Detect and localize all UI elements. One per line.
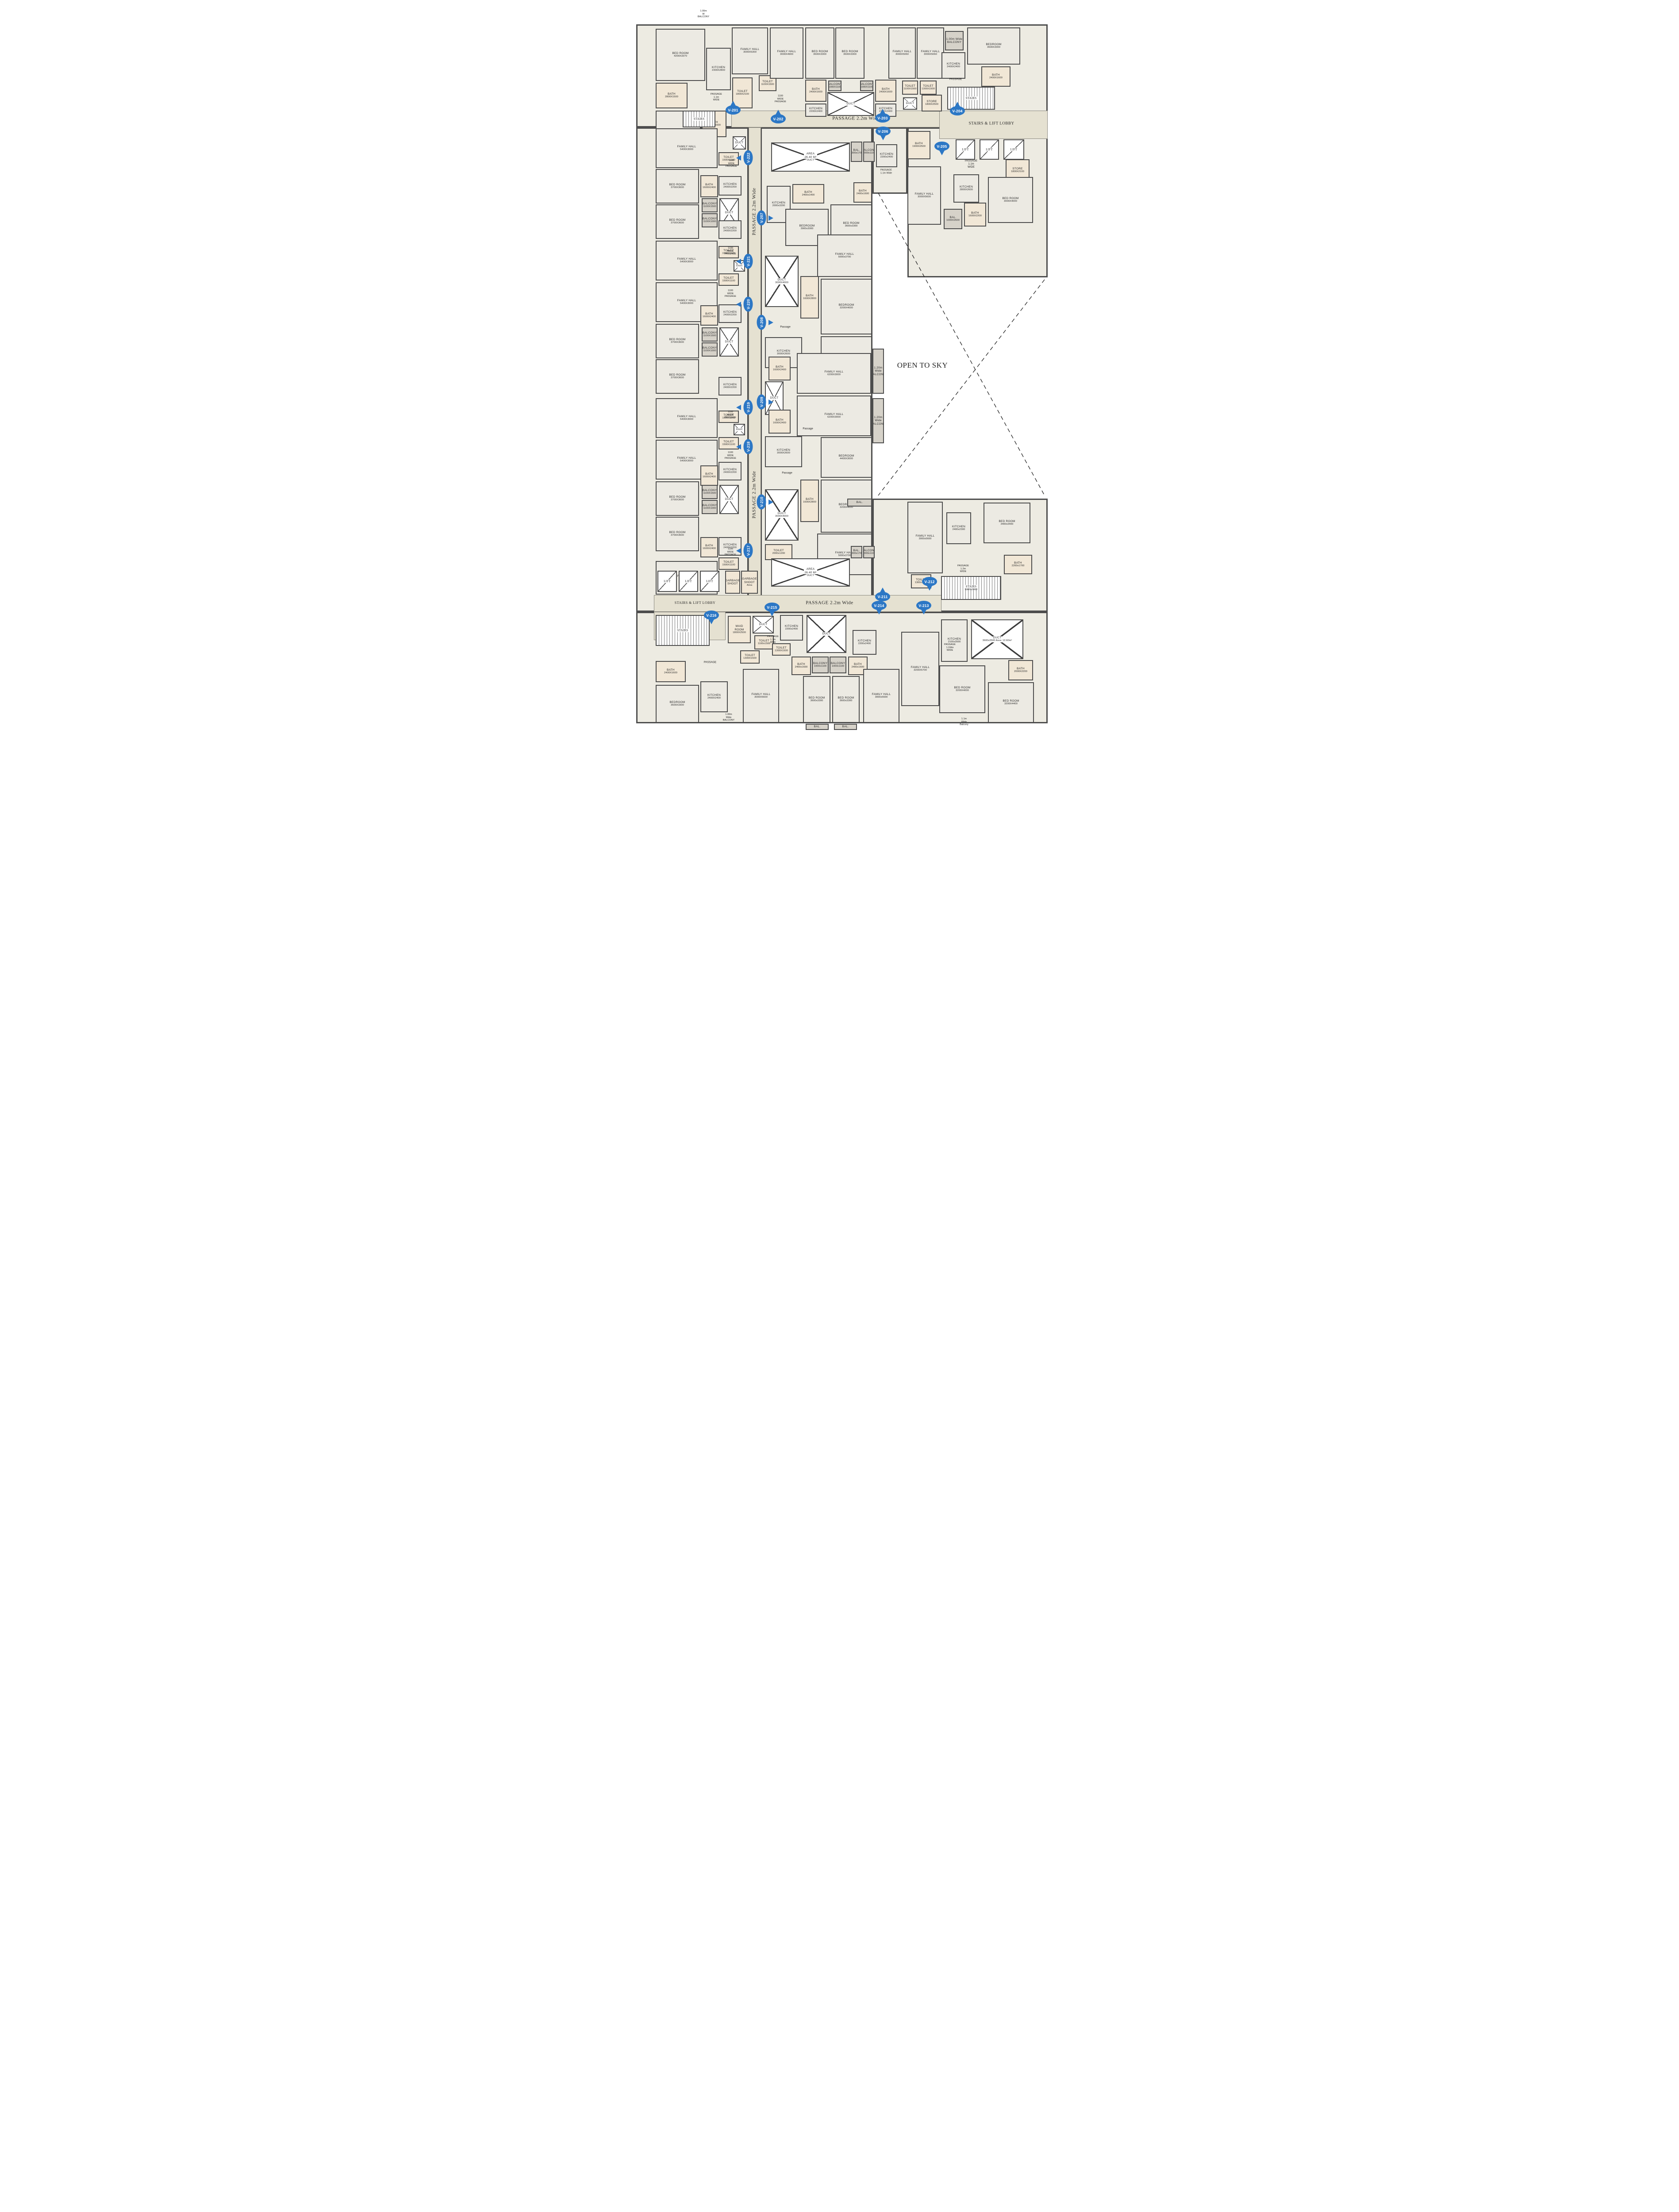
room-dimensions: 6200X3000 — [827, 373, 841, 376]
room-bed-room-137: BED ROOM3600x3300 — [832, 676, 860, 723]
room-dimensions: 1300X1500 — [922, 88, 935, 91]
room-dimensions: 2000x1200 — [772, 552, 785, 555]
marker-id-label: V-221 — [744, 254, 753, 269]
room-store-24: STORE1800X2500 — [922, 95, 942, 111]
room-family-hall-9: FAMILY HALL3000X4900 — [770, 27, 803, 79]
plan-label-passage-21: Passage — [782, 472, 792, 475]
room-label: BAL. — [814, 725, 821, 728]
room-family-hall-142: FAMILY HALL3000x5600 — [907, 502, 943, 573]
room-label: FAMILY HALL — [677, 299, 696, 302]
room-kitchen-49: KITCHEN2200x2400 — [876, 144, 897, 167]
room-bed-room-84: BED ROOM3700X3600 — [656, 359, 699, 394]
duct-duct-122: DUCT — [753, 616, 774, 634]
room-bath-12: BATH2400X1600 — [805, 80, 826, 102]
duct-duct-52: DUCT3000X4000 — [765, 256, 799, 307]
room-label: BATH — [806, 294, 814, 297]
room-dimensions: 1600X2400 — [703, 186, 716, 189]
view-marker-v-208[interactable]: V-208 — [754, 318, 769, 327]
room-label: FAMILY HALL — [893, 50, 912, 53]
room-bath-145: BATH2200x1700 — [1004, 555, 1032, 574]
room-label: KITCHEN — [952, 525, 965, 528]
room-label: KITCHEN — [723, 383, 737, 386]
balcony-balcony-74: BALCONY1000x1100 — [863, 546, 875, 558]
room-label: FAMILY HALL — [677, 457, 696, 460]
room-label: TOILET — [776, 646, 787, 649]
room-family-hall-51: FAMILY HALL5000x3700 — [817, 234, 872, 277]
room-dimensions: 3000X5600 — [918, 196, 931, 199]
room-kitchen-110: KITCHEN2400X2200 — [718, 462, 742, 480]
plan-label-1100-9: 1100 WIDE PASSAGE — [775, 95, 786, 104]
room-dimensions: 2400X1600 — [989, 77, 1003, 80]
balcony-balcony-90: BALCONY1100X1500 — [702, 327, 718, 342]
stairs-stairs-30: STAIRS — [683, 111, 715, 127]
duct-duct-126: DUCT — [807, 615, 846, 653]
view-marker-v-212[interactable]: V-212 — [922, 577, 937, 586]
balcony-bal-73: BAL.1300x1700 — [851, 546, 862, 558]
marker-pointer-icon — [736, 444, 741, 449]
room-dimensions: 3700X3600 — [671, 499, 684, 502]
view-marker-v-207[interactable]: V-207 — [754, 213, 769, 223]
marker-pointer-icon — [736, 405, 741, 410]
room-label: KITCHEN — [772, 201, 785, 204]
room-label: TOILET — [723, 440, 734, 443]
marker-pointer-icon — [876, 610, 882, 614]
room-bed-room-11: BED ROOM3600X3300 — [835, 27, 864, 79]
room-label: KITCHEN — [948, 637, 961, 641]
room-label: FAMILY HALL — [825, 413, 844, 416]
room-label: BED ROOM — [812, 50, 828, 53]
plan-label-passage-10: PASSAGE — [949, 78, 962, 81]
room-bath-13: BATH2400X1600 — [875, 80, 896, 102]
stairs-stairs-147: STAIRS5900x2400 — [941, 576, 1001, 600]
stairs-stairs-120: STAIRS — [656, 615, 710, 646]
room-dimensions: 3600x3500 Area: 12.60m² — [982, 639, 1013, 642]
room-dimensions: 2400X2400 — [947, 65, 960, 69]
balcony-balcony-88: BALCONY1100X1000 — [702, 213, 718, 227]
plan-label-open-to-sky-6: OPEN TO SKY — [897, 361, 948, 370]
room-dimensions: 3000X4000 — [1004, 200, 1017, 203]
marker-id-label: V-222 — [744, 150, 753, 165]
room-bed-room-144: BED ROOM3400x3400 — [984, 503, 1030, 543]
room-label: TOILET — [773, 549, 784, 552]
room-bedroom-65: BEDROOM4400X3000 — [821, 437, 872, 478]
room-bed-room-136: BED ROOM3600x3300 — [803, 676, 830, 723]
room-label: BATH — [806, 498, 814, 501]
room-dimensions: 1100X1500 — [703, 492, 716, 495]
room-kitchen-139: KITCHEN2200x2400 — [853, 630, 876, 655]
plan-label-1100-18: 1100 WIDE PASSAGE — [725, 548, 736, 557]
room-bath-45: BATH2400x1400 — [792, 184, 824, 204]
room-label: BAL. — [857, 501, 863, 504]
room-label: BATH — [705, 472, 713, 476]
room-label: BED ROOM — [809, 696, 825, 699]
room-dimensions: 3000X4000 — [775, 515, 789, 518]
room-label: BEDROOM — [799, 224, 815, 227]
room-dimensions: 3400x3400 — [1001, 523, 1014, 526]
room-dimensions: 2200X2400 — [809, 110, 822, 113]
room-dimensions: 3700X3600 — [671, 186, 684, 189]
room-kitchen-148: KITCHEN2100x3500 — [941, 619, 968, 662]
room-dimensions: DUCT — [807, 574, 815, 577]
room-label: Duct — [736, 428, 743, 431]
duct-duct-16: DUCT — [827, 92, 874, 116]
marker-pointer-icon — [768, 215, 773, 221]
room-dimensions: 2400X1600 — [809, 91, 822, 94]
room-dimensions: 1000x1100 — [832, 665, 844, 668]
balcony-bal-42: BAL.1300x1700 — [851, 142, 862, 162]
room-label: BATH — [992, 73, 1000, 77]
marker-id-label: V-209 — [757, 395, 766, 410]
room-label: GARBAGE SHOOT — [725, 579, 740, 586]
marker-pointer-icon — [736, 548, 741, 553]
room-label: BAL. — [842, 725, 849, 728]
view-marker-v-210[interactable]: V-210 — [754, 497, 769, 507]
room-dimensions: 1800X2100 — [736, 93, 749, 96]
room-family-hall-19: FAMILY HALL3000X5060 — [888, 27, 916, 79]
room-label: GARBAGE SHOOT — [742, 577, 757, 584]
room-kitchen-100: KITCHEN2400X2200 — [718, 220, 742, 239]
room-label: BED ROOM — [669, 338, 686, 341]
lift-lift-116: LIFT — [679, 571, 698, 592]
room-label: FAMILY HALL — [911, 666, 930, 669]
room-family-hall-135: FAMILY HALL3000X5600 — [743, 669, 779, 723]
room-dimensions: 3000x5600 — [919, 538, 932, 541]
room-label: BATH — [1014, 561, 1022, 565]
marker-pointer-icon — [921, 610, 926, 614]
room-dimensions: 5400X3000 — [680, 460, 693, 463]
room-dimensions: 3900x3000 — [801, 227, 814, 230]
room-bed-room-83: BED ROOM3700X3600 — [656, 324, 699, 358]
room-dimensions: 3000X5300 — [743, 51, 757, 54]
room-label: KITCHEN — [858, 639, 871, 642]
room-dimensions: 3600x3300 — [811, 699, 823, 703]
balcony-bal-141: BAL. — [834, 724, 857, 730]
plan-label-passage-12: PASSAGE 1.1m Wide — [880, 169, 892, 174]
room-label: DUCT — [822, 632, 831, 635]
room-bed-room-85: BED ROOM3700X3600 — [656, 481, 699, 516]
room-dimensions: 2400X1600 — [879, 91, 892, 94]
room-label: TOILET — [723, 276, 734, 280]
room-family-hall-8: FAMILY HALL3000X5300 — [732, 27, 768, 74]
room-dimensions: 1000x1100 — [863, 152, 875, 155]
room-label: KITCHEN — [777, 349, 790, 353]
room-label: DUCT — [725, 340, 734, 343]
room-label: STAIRS — [965, 96, 978, 100]
room-kitchen-64: KITCHEN3000X2600 — [765, 436, 802, 467]
plan-label-1100-16: 1100 WIDE PASSAGE — [725, 411, 736, 419]
room-dimensions: DUCT — [807, 159, 815, 162]
room-bedroom-27: BEDROOM3600X3300 — [967, 27, 1020, 65]
room-label: FAMILY HALL — [916, 534, 935, 538]
room-dimensions: 1300x1700 — [851, 152, 862, 155]
room-dimensions: 3200X4400 — [1004, 703, 1018, 706]
room-label: 1.20m Wide BALCONY — [872, 366, 884, 376]
room-dimensions: 2400X2200 — [723, 230, 737, 233]
room-label: KITCHEN — [947, 62, 960, 65]
room-dimensions: 3200X4000 — [840, 307, 853, 310]
room-label: BED ROOM — [669, 219, 686, 222]
room-kitchen-104: KITCHEN2400X2200 — [718, 304, 742, 323]
room-dimensions: 2800X1500 — [665, 96, 678, 99]
room-label: FAMILY HALL — [921, 50, 940, 53]
room-kitchen-133: KITCHEN2400X2400 — [700, 681, 728, 712]
room-dimensions: 1600X2200 — [968, 215, 982, 218]
room-dimensions: 2200x1700 — [1012, 565, 1025, 568]
room-bath-48: BATH2400x1600 — [853, 182, 872, 203]
view-marker-v-202[interactable]: V-202 — [771, 114, 786, 123]
room-family-hall-75: FAMILY HALL5400X3000 — [656, 128, 718, 168]
room-dimensions: 6200X3000 — [827, 416, 841, 419]
marker-id-label: V-204 — [950, 106, 965, 115]
room-toilet-103: TOILET1500X1100 — [718, 273, 739, 286]
plan-label-passage-19: Passage — [780, 326, 790, 329]
balcony-bal-71: BAL. — [847, 499, 872, 507]
room-dimensions: 1600X2400 — [773, 369, 786, 372]
room-label: DUCT — [993, 636, 1002, 639]
room-toilet-21: TOILET1100X1500 — [902, 81, 918, 95]
room-dimensions: 1000X2600 — [946, 219, 960, 222]
room-dimensions: 3200X4000 — [840, 506, 853, 509]
room-label: BATH — [668, 92, 676, 96]
room-label: BED ROOM — [669, 373, 686, 376]
balcony-balcony-91: BALCONY1100X1000 — [702, 342, 718, 357]
room-family-hall-76: FAMILY HALL5400X3000 — [656, 241, 718, 280]
room-label: BATH — [882, 88, 890, 91]
duct-duct-92: DUCT — [719, 327, 739, 357]
room-dimensions: 1100X1000 — [703, 507, 716, 510]
room-dimensions: 2000x3200 — [772, 204, 785, 207]
view-marker-v-218[interactable]: V-218 — [741, 442, 756, 451]
room-bath-39: BATH1600X2200 — [964, 203, 986, 227]
room-dimensions: 3000X5060 — [895, 53, 909, 56]
room-family-hall-59: FAMILY HALL6200X3000 — [797, 353, 871, 394]
room-toilet-69: TOILET2000x1200 — [765, 544, 792, 560]
room-dimensions: 3000X2600 — [777, 353, 790, 356]
view-marker-v-217[interactable]: V-217 — [741, 546, 756, 555]
view-marker-v-220[interactable]: V-220 — [741, 300, 756, 309]
room-dimensions: 2400x1600 — [795, 666, 808, 669]
room-label: STORE — [926, 100, 937, 103]
view-marker-v-203[interactable]: V-203 — [875, 113, 890, 123]
view-marker-v-201[interactable]: V-201 — [726, 105, 741, 115]
room-bath-132: BATH2400X1600 — [656, 661, 686, 682]
duct-area-26-40-m-41: AREA 26.40 M²DUCT — [771, 142, 850, 172]
room-toilet-131: TOILET1300X1500 — [772, 643, 791, 656]
room-label: FAMILY HALL — [677, 145, 696, 148]
room-dimensions: 1800X2100 — [1011, 170, 1024, 173]
room-label: BATH — [705, 544, 713, 547]
marker-id-label: V-205 — [934, 142, 949, 151]
room-label: KITCHEN — [707, 694, 721, 697]
room-label: KITCHEN — [723, 227, 737, 230]
room-label: KITCHEN — [723, 468, 737, 471]
marker-pointer-icon — [880, 135, 886, 140]
view-marker-v-215[interactable]: V-215 — [765, 603, 780, 612]
room-dimensions: 3200X4000 — [956, 689, 969, 692]
room-dimensions: 1000X1100 — [828, 86, 841, 89]
room-dimensions: 3200X5700 — [914, 669, 927, 672]
room-label: DUCT — [735, 141, 744, 144]
room-label: BED ROOM — [954, 686, 971, 689]
room-dimensions: 3000X4900 — [780, 53, 793, 56]
room-label: BED ROOM — [838, 696, 854, 699]
room-dimensions: 3600x3300 — [845, 225, 858, 228]
room-label: TOILET — [723, 156, 734, 159]
room-bed-room-82: BED ROOM3700X3600 — [656, 204, 699, 239]
room-dimensions: 2400x2300 — [953, 528, 965, 531]
plan-label-passage-8: PASSAGE 1.1m WIDE — [711, 93, 722, 102]
room-label: BED ROOM — [1003, 699, 1019, 703]
room-label: TOILET — [723, 561, 734, 564]
room-dimensions: 1500X1100 — [722, 564, 735, 567]
room-label: TOILET — [745, 654, 755, 657]
plan-label-passage-25: PASSAGE — [704, 661, 716, 664]
room-bedroom-54: BEDROOM3200X4000 — [821, 279, 872, 334]
room-label: DUCT — [759, 623, 768, 626]
view-marker-v-219[interactable]: V-219 — [741, 403, 756, 412]
room-label: STORE — [1012, 167, 1022, 170]
room-family-hall-37: FAMILY HALL3000X5600 — [907, 166, 941, 225]
room-dimensions: 1300X1500 — [775, 649, 788, 653]
marker-id-label: V-210 — [757, 495, 766, 510]
room-label: BED ROOM — [999, 520, 1015, 523]
plan-label-passage-24: PASSAGE 1.2m WIDE — [957, 565, 969, 573]
room-dimensions: 1100X1500 — [703, 205, 716, 208]
room-label: BATH — [776, 365, 784, 369]
room-family-hall-20: FAMILY HALL3000X5060 — [917, 27, 944, 79]
room-label: DUCT — [906, 102, 915, 105]
room-label: BAL. — [853, 149, 860, 152]
room-label: BAL. — [950, 216, 957, 219]
room-bath-1: BATH2800X1500 — [656, 83, 688, 108]
room-dimensions: 3000X5060 — [924, 53, 937, 56]
room-dimensions: 3000X4000 — [775, 281, 789, 284]
room-bath-150: BATH2000X2200 — [1008, 660, 1033, 680]
room-label: DUCT — [725, 211, 734, 214]
room-dimensions: 2000X2200 — [1014, 670, 1027, 673]
room-label: BATH — [854, 663, 862, 666]
room-label: BALCONY — [860, 83, 873, 86]
room-bed-room-152: BED ROOM3200X4000 — [939, 665, 985, 713]
view-marker-v-206[interactable]: V-206 — [876, 127, 891, 136]
room-kitchen-36: KITCHEN2800X2600 — [953, 174, 979, 203]
room-dimensions: 1100X1000 — [703, 220, 716, 223]
room-label: 1.20m Wide BALCONY — [872, 416, 884, 426]
plan-label-passage-2-2m-wide-2: PASSAGE 2.2m Wide — [751, 471, 757, 518]
view-marker-v-216[interactable]: V-216 — [704, 611, 719, 620]
room-kitchen-106: KITCHEN2400X2200 — [718, 377, 742, 396]
marker-id-label: V-212 — [922, 577, 937, 586]
duct-duct-108: Duct — [734, 424, 745, 435]
room-dimensions: 3600X3300 — [843, 53, 857, 56]
room-dimensions: 1900X2500 — [912, 145, 926, 148]
view-marker-v-211[interactable]: V-211 — [875, 592, 890, 601]
room-label: LIFT — [664, 580, 671, 583]
duct-duct-23: DUCT — [903, 97, 917, 110]
room-dimensions: 4200X3370 — [674, 55, 687, 58]
room-bath-63: BATH1600X2400 — [768, 410, 791, 434]
room-label: FAMILY HALL — [777, 50, 796, 53]
room-label: BATH — [797, 663, 805, 666]
room-dimensions: 2400X2200 — [723, 314, 737, 317]
room-maid-room-121: MAID ROOM1800X2500 — [728, 616, 751, 643]
balcony-balcony-43: BALCONY1000x1100 — [863, 142, 875, 162]
balcony-balcony-94: BALCONY1100X1000 — [702, 500, 718, 514]
room-label: KITCHEN — [777, 449, 790, 452]
room-label: BED ROOM — [669, 531, 686, 534]
marker-pointer-icon — [768, 499, 773, 505]
room-bed-room-153: BED ROOM3200X4400 — [988, 682, 1034, 723]
marker-id-label: V-220 — [744, 297, 753, 312]
view-marker-v-204[interactable]: V-204 — [950, 106, 965, 115]
room-dimensions: 3700X3600 — [671, 222, 684, 225]
room-dimensions: 1600X2400 — [703, 547, 716, 550]
plan-label-stairs-lift-lobby-5: STAIRS & LIFT LOBBY — [675, 601, 716, 605]
marker-id-label: V-202 — [771, 114, 786, 123]
marker-id-label: V-201 — [726, 105, 741, 115]
room-dimensions: 2400X2400 — [707, 697, 721, 700]
view-marker-v-205[interactable]: V-205 — [934, 142, 949, 151]
room-label: FAMILY HALL — [677, 415, 696, 418]
room-dimensions: 5400X3000 — [680, 418, 693, 421]
room-dimensions: 2400x1600 — [857, 192, 869, 196]
room-label: BATH — [804, 191, 812, 194]
room-label: BATH — [667, 668, 675, 672]
room-dimensions: 1500X1100 — [722, 443, 735, 446]
room-dimensions: 5900x2400 — [965, 588, 978, 591]
room-dimensions: 1800X2500 — [733, 631, 746, 634]
room-label: BED ROOM — [672, 52, 689, 55]
room-dimensions: 3700X3600 — [671, 341, 684, 344]
marker-id-label: V-219 — [744, 400, 753, 415]
marker-pointer-icon — [768, 399, 773, 405]
view-marker-v-214[interactable]: V-214 — [872, 601, 887, 610]
marker-id-label: V-213 — [916, 601, 931, 610]
room-kitchen-99: KITCHEN2400X2200 — [718, 176, 742, 196]
duct-duct-96: DUCT — [733, 136, 746, 150]
view-marker-v-221[interactable]: V-221 — [741, 257, 756, 266]
room-label: BED ROOM — [843, 222, 860, 225]
view-marker-v-213[interactable]: V-213 — [916, 601, 931, 610]
marker-id-label: V-206 — [876, 127, 891, 136]
room-kitchen-17: KITCHEN2200X2400 — [805, 104, 826, 117]
room-label: BALCONY — [703, 346, 717, 349]
room-label: MAID ROOM — [734, 625, 744, 631]
room-dimensions: 1600X2400 — [703, 315, 716, 319]
room-dimensions: 2400X2200 — [723, 471, 737, 474]
room-bath-57: BATH1600X2400 — [768, 357, 791, 380]
balcony-balcony-87: BALCONY1100X1500 — [702, 198, 718, 212]
room-label: TOILET — [737, 90, 748, 93]
view-marker-v-222[interactable]: V-222 — [741, 153, 756, 162]
room-family-hall-78: FAMILY HALL5400X3000 — [656, 398, 718, 438]
room-label: BALCONY — [828, 83, 841, 86]
room-label: STAIRS — [693, 117, 706, 121]
view-marker-v-209[interactable]: V-209 — [754, 397, 769, 407]
room-dimensions: 2400x1600 — [852, 666, 864, 669]
room-dimensions: 2400X2200 — [723, 386, 737, 389]
balcony-balcony-93: BALCONY1100X1500 — [702, 485, 718, 499]
room-label: KITCHEN — [723, 311, 737, 314]
room-label: FAMILY HALL — [872, 693, 891, 696]
room-dimensions: 1000X1100 — [860, 86, 873, 89]
room-label: BAL. — [853, 549, 860, 552]
marker-id-label: V-214 — [872, 601, 887, 610]
marker-pointer-icon — [709, 619, 714, 624]
marker-pointer-icon — [927, 586, 932, 591]
marker-id-label: V-215 — [765, 603, 780, 612]
room-label: BATH — [812, 88, 820, 91]
